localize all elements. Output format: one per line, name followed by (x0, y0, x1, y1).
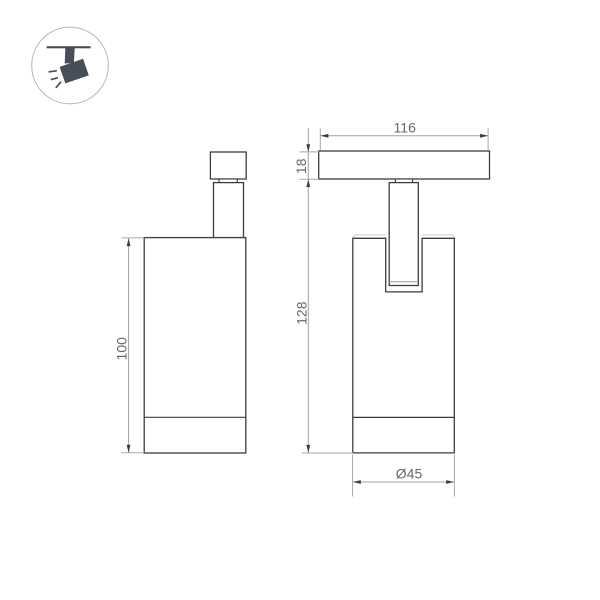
svg-text:100: 100 (113, 337, 129, 361)
svg-text:128: 128 (294, 301, 310, 325)
svg-text:116: 116 (394, 119, 417, 135)
svg-text:Ø45: Ø45 (396, 465, 423, 481)
svg-text:18: 18 (293, 158, 309, 174)
